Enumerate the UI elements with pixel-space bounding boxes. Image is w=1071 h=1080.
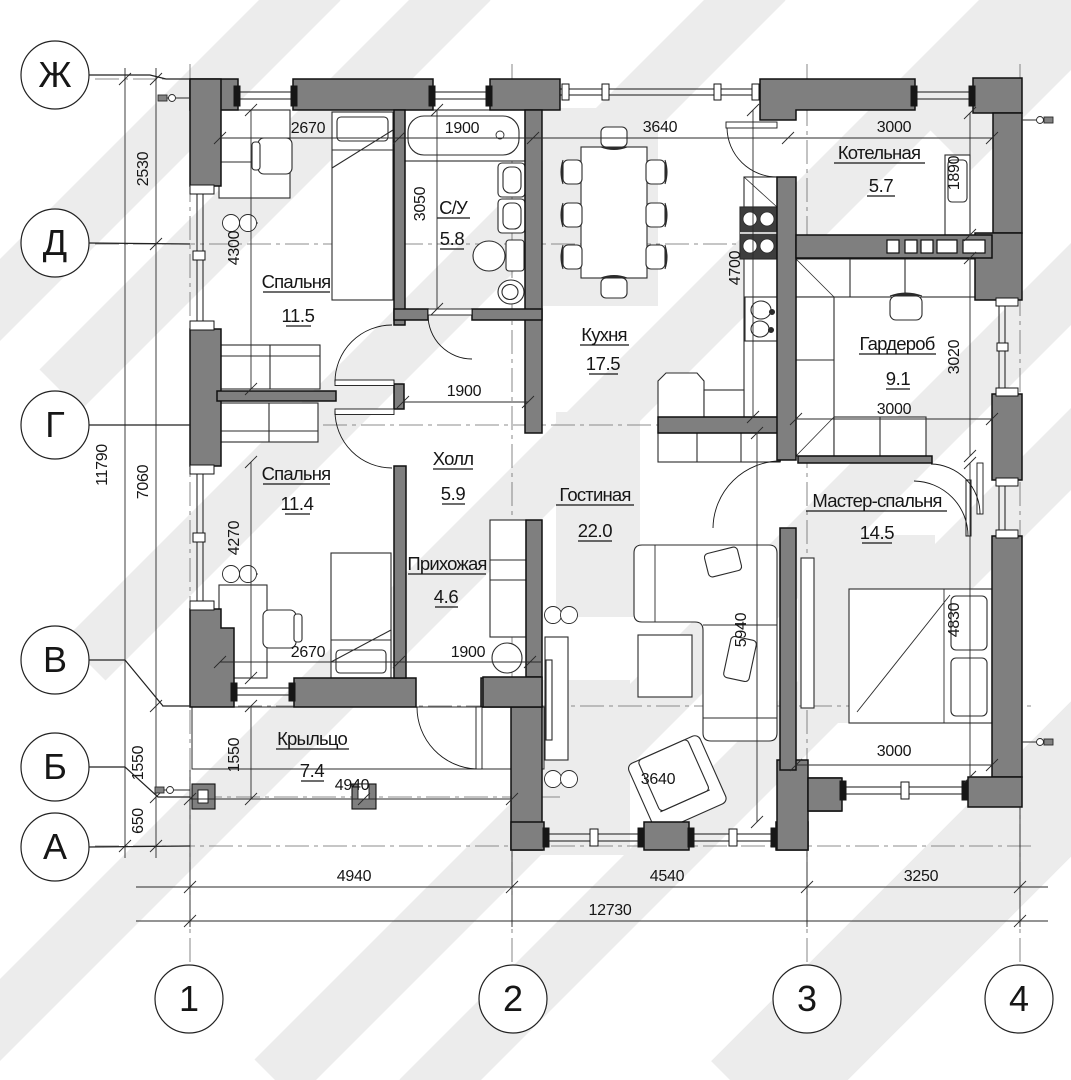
svg-text:14.5: 14.5 (860, 522, 895, 543)
svg-text:4: 4 (1009, 978, 1029, 1019)
svg-text:2670: 2670 (291, 120, 326, 137)
svg-text:1900: 1900 (447, 383, 482, 400)
svg-text:Гостиная: Гостиная (559, 484, 630, 505)
svg-text:5.8: 5.8 (440, 228, 465, 249)
svg-text:4.6: 4.6 (434, 586, 459, 607)
svg-text:5940: 5940 (733, 612, 750, 647)
svg-text:3: 3 (797, 978, 817, 1019)
svg-text:3000: 3000 (877, 119, 912, 136)
svg-text:С/У: С/У (439, 197, 468, 218)
svg-text:Д: Д (43, 222, 67, 263)
svg-text:1550: 1550 (130, 745, 147, 780)
svg-text:2670: 2670 (291, 644, 326, 661)
svg-text:650: 650 (130, 808, 147, 834)
svg-text:Кухня: Кухня (581, 324, 627, 345)
svg-text:4830: 4830 (946, 602, 963, 637)
svg-text:1900: 1900 (445, 120, 480, 137)
svg-text:Спальня: Спальня (262, 463, 331, 484)
svg-text:Ж: Ж (38, 54, 71, 95)
svg-text:Крыльцо: Крыльцо (277, 728, 347, 749)
svg-text:Б: Б (43, 746, 67, 787)
svg-text:22.0: 22.0 (578, 520, 613, 541)
svg-text:5.9: 5.9 (441, 483, 466, 504)
svg-text:4940: 4940 (335, 777, 370, 794)
svg-text:11790: 11790 (94, 444, 111, 486)
svg-text:7.4: 7.4 (300, 760, 325, 781)
svg-text:Мастер-спальня: Мастер-спальня (812, 490, 941, 511)
svg-text:3000: 3000 (877, 743, 912, 760)
svg-text:Котельная: Котельная (838, 142, 920, 163)
svg-text:А: А (43, 826, 67, 867)
svg-text:1900: 1900 (451, 644, 486, 661)
svg-text:11.4: 11.4 (280, 493, 313, 514)
svg-text:3000: 3000 (877, 401, 912, 418)
svg-text:3640: 3640 (643, 119, 678, 136)
svg-text:3020: 3020 (946, 339, 963, 374)
svg-text:12730: 12730 (589, 902, 632, 919)
svg-text:Г: Г (45, 404, 65, 445)
svg-text:2530: 2530 (135, 151, 152, 186)
svg-text:4940: 4940 (337, 868, 372, 885)
svg-text:1890: 1890 (946, 155, 963, 190)
svg-text:4300: 4300 (226, 230, 243, 265)
svg-text:3050: 3050 (412, 186, 429, 221)
svg-text:Гардероб: Гардероб (860, 333, 935, 354)
svg-text:3640: 3640 (641, 771, 676, 788)
svg-text:11.5: 11.5 (281, 305, 314, 326)
svg-text:Прихожая: Прихожая (407, 553, 486, 574)
svg-text:3250: 3250 (904, 868, 939, 885)
svg-text:Холл: Холл (433, 448, 473, 469)
svg-text:7060: 7060 (135, 464, 152, 499)
svg-text:5.7: 5.7 (869, 175, 894, 196)
svg-text:1: 1 (179, 978, 199, 1019)
svg-text:2: 2 (503, 978, 523, 1019)
svg-text:17.5: 17.5 (586, 353, 621, 374)
svg-text:В: В (43, 639, 67, 680)
svg-text:9.1: 9.1 (886, 368, 911, 389)
svg-text:1550: 1550 (226, 737, 243, 772)
svg-text:4270: 4270 (226, 520, 243, 555)
svg-text:4700: 4700 (727, 250, 744, 285)
svg-text:Спальня: Спальня (262, 271, 331, 292)
svg-text:4540: 4540 (650, 868, 685, 885)
